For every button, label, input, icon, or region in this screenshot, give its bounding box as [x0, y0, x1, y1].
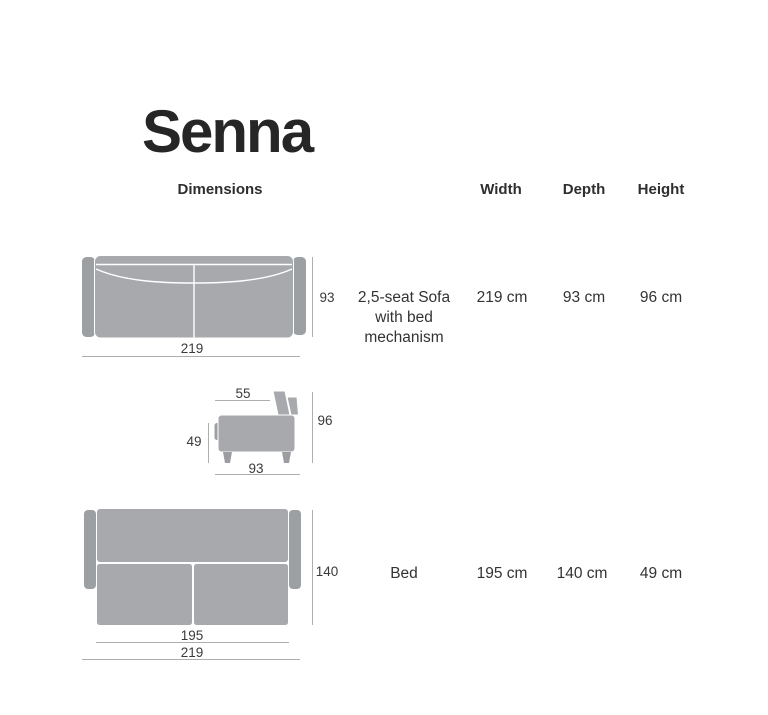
- bed-left-armrest: [84, 510, 96, 589]
- row-bed-height-value: 49 cm: [626, 565, 696, 583]
- row-sofa-name: 2,5-seat Sofa with bed mechanism: [342, 288, 466, 348]
- bed-width-dim: 195: [171, 628, 213, 643]
- bed-top-view-diagram: [82, 509, 308, 626]
- bed-mattress-right: [194, 564, 288, 625]
- column-header-depth: Depth: [549, 181, 619, 198]
- sofa-right-armrest: [293, 257, 306, 335]
- sofa-top-width-dim-line: [82, 356, 300, 357]
- side-height-dim: 96: [310, 413, 340, 428]
- row-bed-depth-value: 140 cm: [547, 565, 617, 583]
- side-seat-depth-dim: 55: [227, 386, 259, 401]
- side-seat-height-dim-line: [208, 423, 209, 463]
- side-body: [218, 415, 295, 452]
- row-sofa-name-line1: 2,5-seat Sofa: [342, 288, 466, 308]
- side-seat-depth-dim-line: [215, 400, 270, 401]
- side-seat-height-dim: 49: [180, 434, 208, 449]
- row-sofa-depth-value: 93 cm: [549, 289, 619, 307]
- side-rear-leg: [282, 452, 291, 463]
- bed-total-width-dim-line: [82, 659, 300, 660]
- bed-mattress-left: [97, 564, 192, 625]
- bed-right-armrest: [289, 510, 301, 589]
- sofa-top-depth-dim: 93: [312, 290, 342, 305]
- row-sofa-width-value: 219 cm: [467, 289, 537, 307]
- row-sofa-name-line2: with bed: [342, 308, 466, 328]
- side-depth-dim-line: [215, 474, 300, 475]
- column-header-width: Width: [466, 181, 536, 198]
- bed-width-dim-line: [96, 642, 289, 643]
- page-title: Senna: [142, 102, 312, 162]
- row-bed-width-value: 195 cm: [467, 565, 537, 583]
- row-sofa-height-value: 96 cm: [626, 289, 696, 307]
- dimensions-label: Dimensions: [160, 181, 280, 198]
- sofa-top-width-dim: 219: [171, 341, 213, 356]
- sofa-top-view-diagram: [81, 255, 307, 339]
- bed-back-section: [97, 509, 288, 562]
- bed-total-width-dim: 219: [171, 645, 213, 660]
- column-header-height: Height: [626, 181, 696, 198]
- side-front-leg: [223, 452, 232, 463]
- row-sofa-name-line3: mechanism: [342, 328, 466, 348]
- bed-depth-dim: 140: [309, 564, 345, 579]
- side-backrest-front: [273, 391, 290, 415]
- sofa-left-armrest: [82, 257, 95, 337]
- row-bed-name: Bed: [342, 565, 466, 583]
